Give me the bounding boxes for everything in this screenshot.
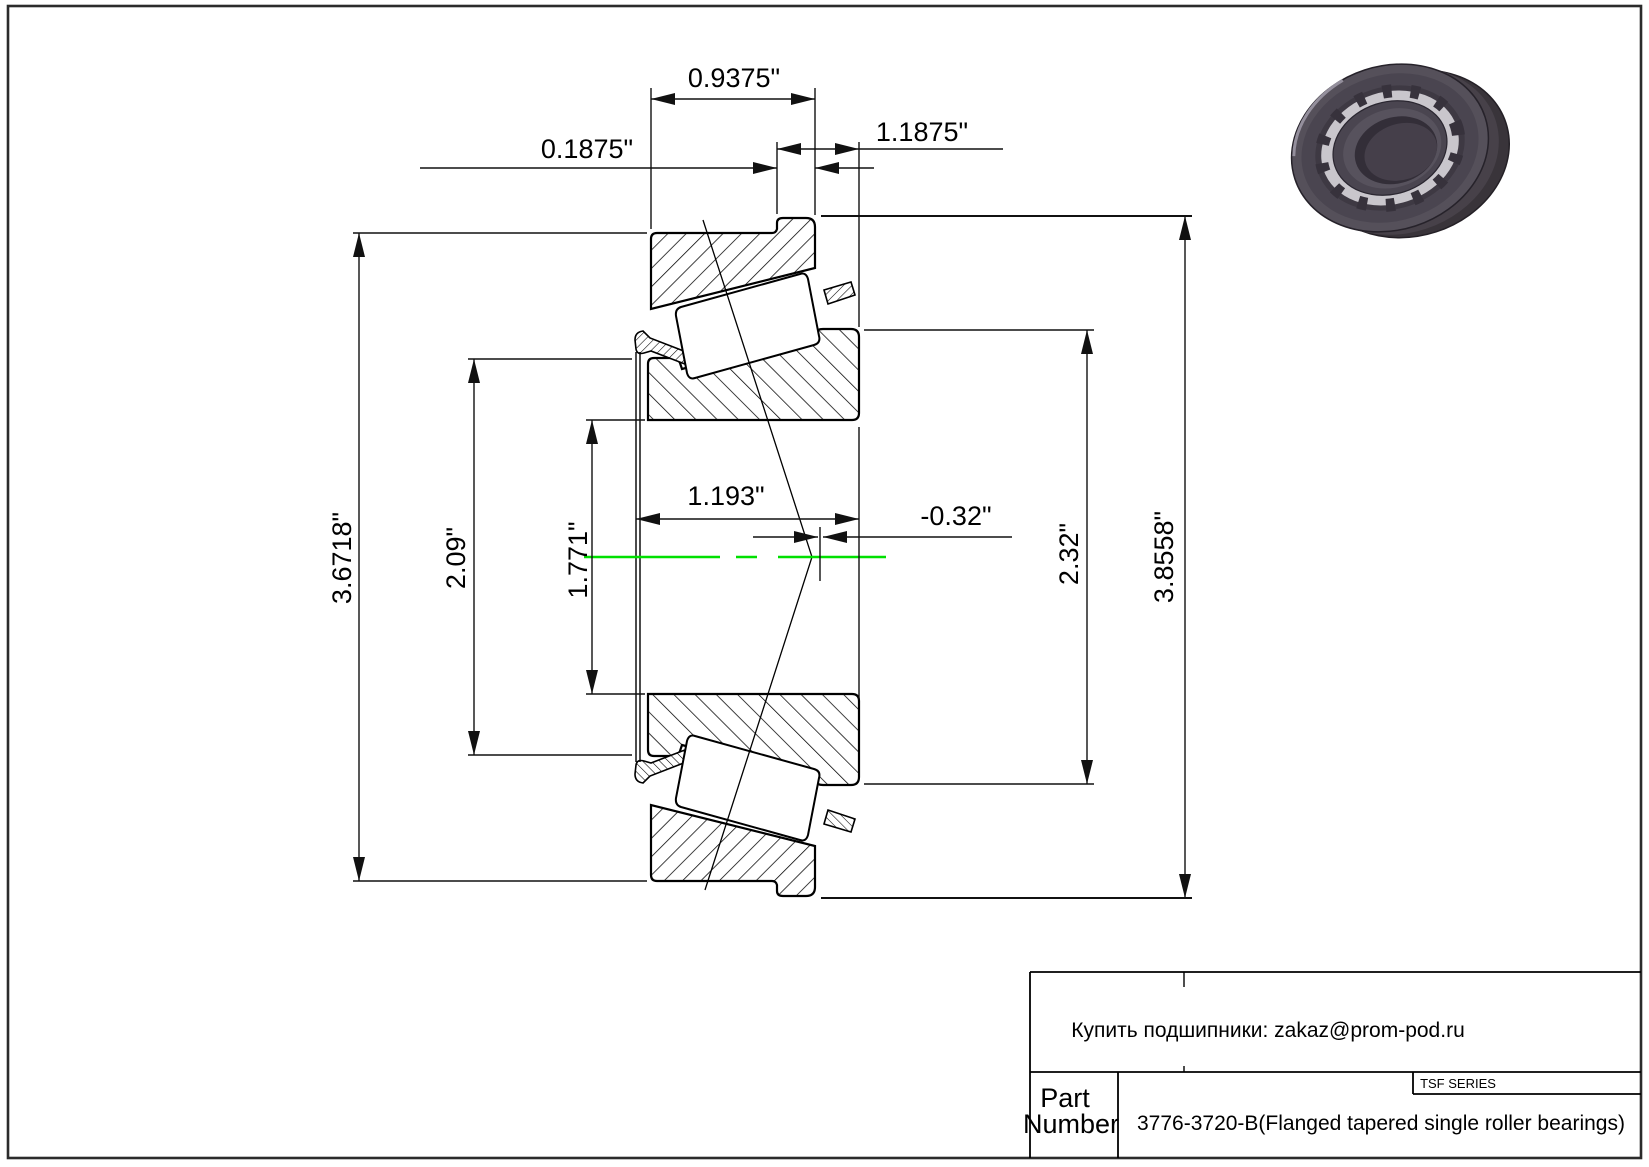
drawing-sheet: 0.9375" 0.1875" 1.1875" 3.6718" 2.09" 1.… (0, 0, 1649, 1167)
cage-bottom-right (824, 810, 855, 832)
cage-top-right (824, 282, 855, 304)
title-block-series: TSF SERIES (1420, 1076, 1496, 1091)
part-number-value: 3776-3720-B(Flanged tapered single rolle… (1137, 1112, 1625, 1135)
dim-cone-width: 1.193" (687, 481, 764, 511)
dim-front-rib-od: 2.09" (441, 527, 471, 589)
dim-bore: 1.771" (563, 521, 593, 598)
dim-flange-width: 0.1875" (541, 134, 633, 164)
dim-effective-center: -0.32" (920, 501, 991, 531)
dim-flange-od: 3.8558" (1149, 511, 1179, 603)
dim-total-width: 1.1875" (876, 117, 968, 147)
title-block-contact: Купить подшипники: zakaz@prom-pod.ru (1071, 1019, 1465, 1042)
dim-cup-od: 3.6718" (327, 512, 357, 604)
dim-cup-width: 0.9375" (688, 63, 780, 93)
part-number-label-line2: Number (1023, 1109, 1119, 1139)
bearing-3d-image (1270, 34, 1532, 269)
dim-back-rib-od: 2.32" (1054, 523, 1084, 585)
